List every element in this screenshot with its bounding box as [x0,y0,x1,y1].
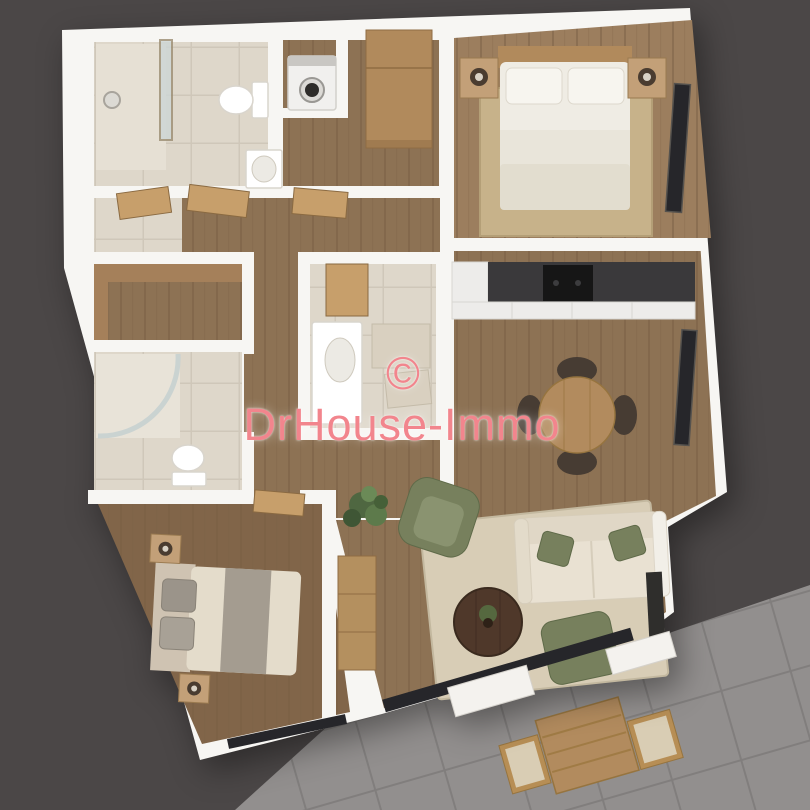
sofa [514,511,670,604]
wc-door [326,264,368,316]
wc-basin [325,338,355,382]
sink [246,150,282,188]
coffee-table [454,588,522,656]
wc-mat [384,370,431,408]
kitchen-base-cabinets [452,302,695,319]
nightstand-with-lamp [150,534,181,564]
floorplan-canvas [0,0,810,810]
nightstand-with-lamp [460,58,498,98]
apartment [62,8,727,760]
kitchen [452,262,695,319]
hallway-door [292,188,348,219]
shower-head [104,92,120,108]
bed-1-duvet-end [500,164,630,210]
nightstand-with-lamp [628,58,666,98]
shower-glass [160,40,172,140]
washing-machine [288,56,336,110]
floorplan-render: { "watermark": { "symbol": "©", "brand":… [0,0,810,810]
bed-1-pillow [568,68,624,104]
wardrobe-cabinet [366,30,432,148]
cooktop [543,265,593,301]
bed-1-duvet-fold [500,130,630,168]
sideboard [338,556,376,670]
dining-table [539,377,615,453]
bed-2-pillow [161,579,197,613]
bedroom-2-door [253,490,305,516]
scene: © DrHouse-Immo [0,0,810,810]
toilet [172,445,206,486]
bed-2-runner [220,568,271,674]
nightstand-with-lamp [178,674,209,704]
bed-1-pillow [506,68,562,104]
bed-2-pillow [159,617,195,651]
wc-mat [372,324,430,368]
